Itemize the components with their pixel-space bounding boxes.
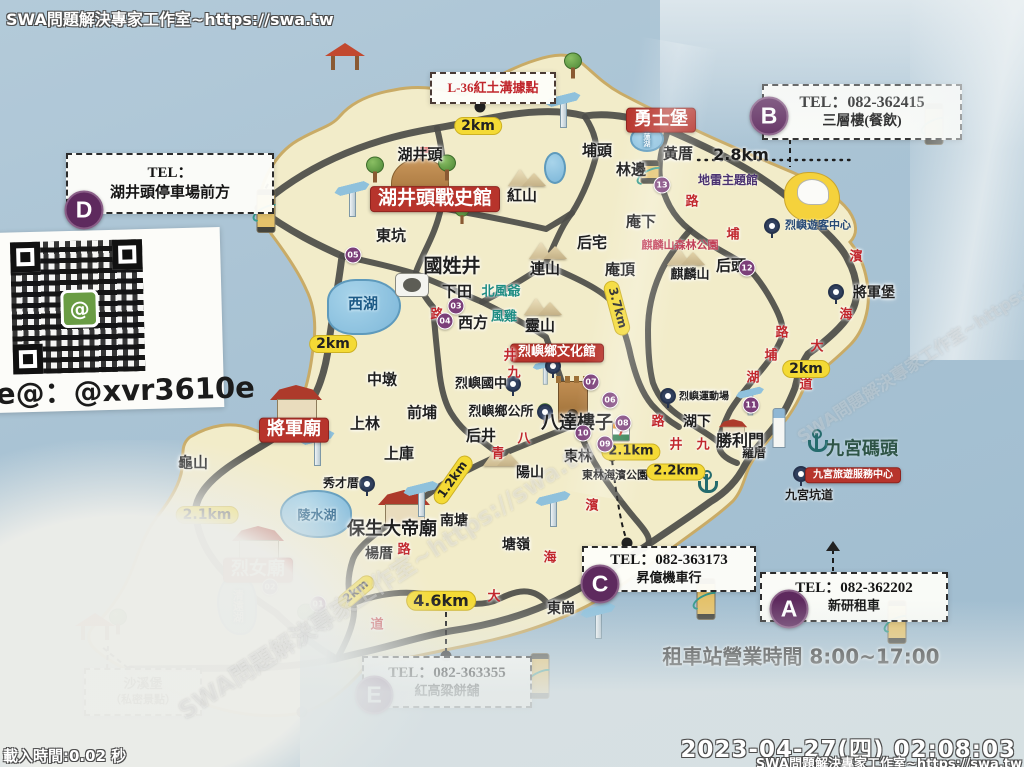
map-label: 井 [669,439,682,454]
map-pin-icon [359,476,375,492]
stop-marker-04: 04 [437,313,454,330]
mountain-icon [508,168,546,186]
battery-kiosk-icon [531,653,550,699]
map-label: 后宅 [577,234,607,251]
map-label: 麒麟山 [670,269,709,284]
map-label: 九 [507,367,520,382]
map-label: 2.2km [646,464,705,481]
map-label: 西方 [458,314,488,331]
note-box-l36: L-36紅土溝據點 [430,72,556,104]
map-label: 東林海濱公園 [582,470,648,483]
map-label: 勝利門 [716,432,764,450]
map-label: 麒麟山森林公園 [642,240,719,253]
stop-marker-03: 03 [448,298,465,315]
label-jiangjun-temple: 將軍廟 [259,418,329,443]
map-label: 路 [651,416,664,431]
line-at-logo-icon: @ [60,289,99,328]
label-jiangjun-fort: 將軍堡 [853,285,895,301]
map-label: 紅山 [507,187,537,204]
stop-marker-02: 02 [262,579,279,596]
marker-letter-A: A [770,590,809,629]
signpost-icon [580,604,616,638]
label-lieyu-culture-hall: 烈嶼鄉文化館 [510,344,604,363]
note-box-l36-line: L-36紅土溝據點 [432,80,554,97]
junction-dot [297,707,308,718]
label-guoxing-well: 國姓井 [423,256,480,278]
map-label: 九 [696,439,709,454]
map-label: 前埔 [407,404,437,421]
qr-code: @ [10,239,145,374]
pavilion-icon [323,43,367,73]
map-label: 湖 [746,372,759,387]
marker-letter-D: D [65,191,104,230]
marker-letter-B: B [750,97,789,136]
wind-rooster-icon [784,172,840,222]
map-label: 上庫 [384,445,414,462]
map-label: 海 [543,552,556,567]
stop-marker-05: 05 [345,247,362,264]
map-label: 埔 [726,229,739,244]
map-label: 烈嶼遊客中心 [785,220,851,233]
map-label: 連山 [530,260,560,277]
load-time-text: 載入時間:0.02 秒 [3,745,126,766]
label-lake-lian: 蓮湖 [643,133,651,147]
map-label: 2km [454,117,502,135]
map-pin-icon [660,388,676,404]
rental-hours-note: 租車站營業時間 8:00~17:00 [662,646,939,669]
signpost-icon [334,182,370,216]
map-label: 湖下 [683,414,711,430]
map-label: 烈嶼國中 [455,378,507,393]
tree-icon [108,609,128,636]
info-box-D-line: TEL： [68,164,272,184]
stop-marker-07: 07 [583,374,600,391]
line-id-caption: e@：@xvr3610e [0,365,224,413]
label-lienv-temple: 烈女廟 [223,558,293,583]
map-pin-icon [828,284,844,300]
lighthouse-icon [773,408,786,448]
map-label: 烈嶼鄉公所 [468,406,533,421]
watermark-bottom-right: SWA問題解決專家工作室~https://swa.tw [756,753,1022,767]
map-label: 道 [799,379,812,394]
map-label: 青 [491,448,504,463]
map-label: 埔頭 [582,142,612,159]
map-label: 2km [309,335,357,353]
map-label: 2.1km [176,506,239,524]
label-hujingtou-war-museum: 湖井頭戰史館 [370,186,500,212]
info-box-E-line: TEL：082-363355 [364,664,530,684]
line-qr-sticker: @ e@：@xvr3610e [0,227,224,413]
map-label: 中墩 [367,371,397,388]
label-lake-west: 西湖 [348,295,378,312]
map-label: 林邊 [616,161,646,178]
map-label: 后井 [466,427,496,444]
map-label: 烈嶼運動場 [679,391,729,403]
map-label: 路 [685,196,698,211]
label-yongshi-fort: 勇士堡 [626,108,696,133]
map-label: 大 [810,341,823,356]
stop-marker-06: 06 [602,392,619,409]
map-label: 龜山 [178,454,208,471]
info-box-B-line: 三層樓(餐飲) [764,113,960,131]
tree-icon [365,157,385,184]
marker-letter-C: C [581,565,620,604]
map-label: 北風爺 [481,286,520,301]
map-label: 埔 [764,350,777,365]
map-label: 靈山 [525,317,555,334]
stop-marker-13: 13 [654,177,671,194]
map-label: 黃厝 [663,145,693,162]
map-label: 井 [503,350,516,365]
map-label: 濱 [585,500,598,515]
info-box-B-line: TEL：082-362415 [764,93,960,114]
label-jiugong-tunnel: 九宮坑道 [785,489,833,503]
map-label: 東坑 [376,227,406,244]
map-label: 上林 [350,415,380,432]
tree-icon [563,53,583,80]
stop-marker-09: 09 [597,436,614,453]
stop-marker-08: 08 [615,415,632,432]
info-box-B: TEL：082-362415三層樓(餐飲) [762,84,962,140]
map-label: 八 [517,433,530,448]
marker-letter-E: E [355,676,394,715]
map-label: 秀才厝 [323,477,359,491]
map-label: 東崗 [547,601,575,617]
mountain-icon [524,297,562,315]
label-lake-lingshui: 陵水湖 [297,510,336,525]
arrowhead-icon [826,541,840,551]
map-pin-icon [764,218,780,234]
map-label: 2.8km [713,146,769,164]
map-photo: 湖井頭戰史館勇士堡將軍廟烈女廟烈嶼鄉文化館九宮旅遊服務中心湖井頭埔頭林邊黃厝紅山… [0,0,1024,767]
map-label: 庵頂 [605,261,635,278]
map-label: 塘嶺 [502,537,530,553]
map-label: 湖井頭 [397,146,442,163]
label-lake-qingyuan: 清遠湖 [231,590,244,623]
qr-finder [10,242,41,273]
mountain-icon [529,241,567,259]
jiangjun-temple-icon [270,385,322,421]
qr-finder [112,239,143,270]
map-label: 路 [775,327,788,342]
map-label: 庵下 [626,213,656,230]
stop-marker-12: 12 [739,260,756,277]
pond [544,152,566,184]
map-label: 道 [370,619,383,634]
label-jiugong-pier: 九宮碼頭 [826,440,898,461]
map-label: 海 [839,309,852,324]
label-landmine-museum: 地雷主題館 [698,174,758,188]
watermark-top-left: SWA問題解決專家工作室~https://swa.tw [6,6,334,30]
map-label: 4.6km [406,591,476,611]
map-label: 風雞 [491,311,517,326]
lienv-temple-icon [232,526,284,562]
stop-marker-11: 11 [743,397,760,414]
map-label: 濱 [849,251,862,266]
label-jiugong-visitor-center: 九宮旅遊服務中心 [805,467,901,483]
map-label: 2km [782,360,830,378]
map-label: 大 [487,591,500,606]
